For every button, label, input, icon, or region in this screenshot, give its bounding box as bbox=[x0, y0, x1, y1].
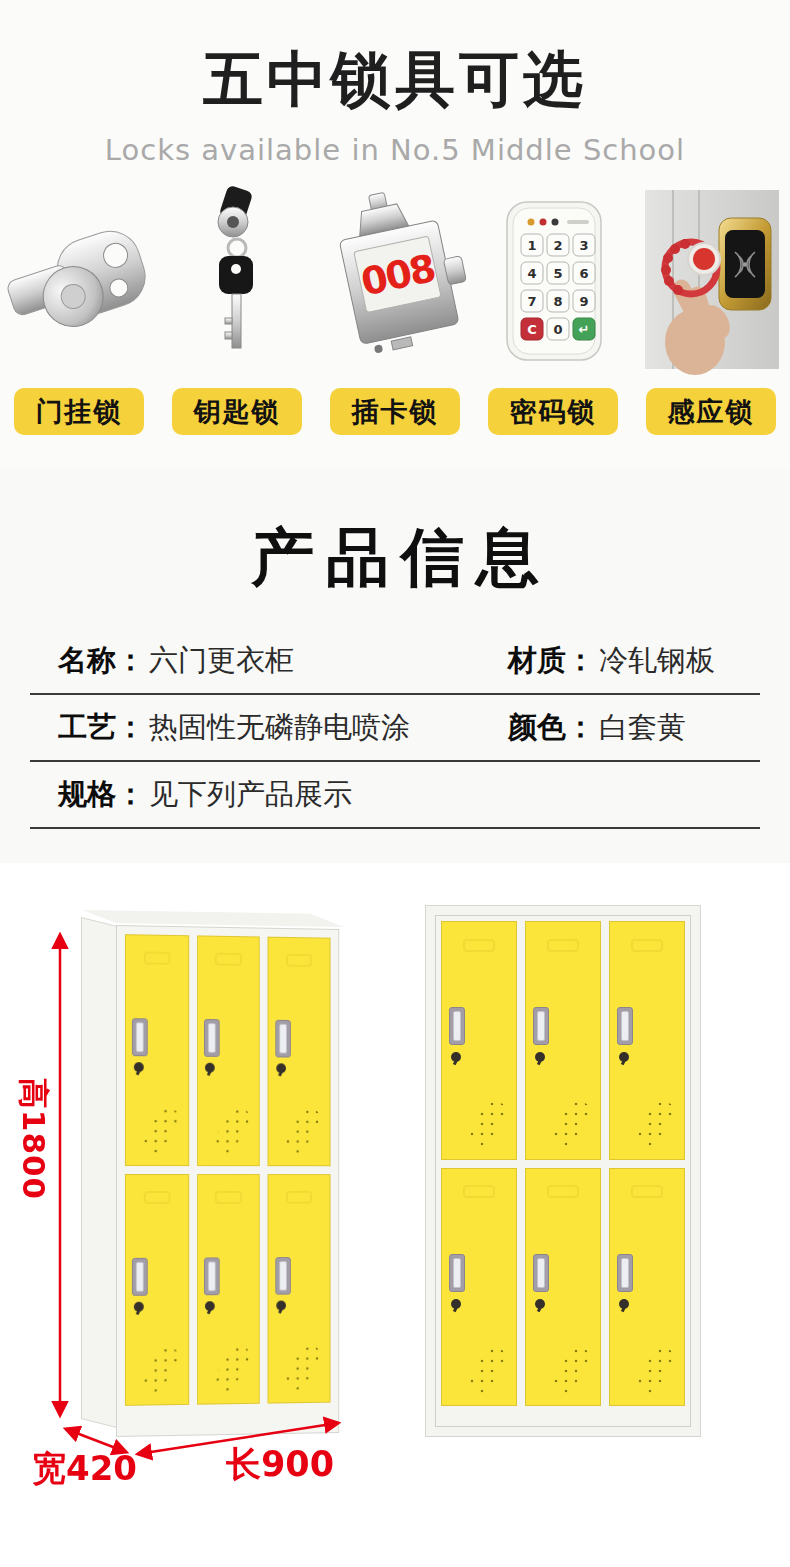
door-keyhole-icon bbox=[619, 1299, 629, 1309]
door-top-vent bbox=[215, 953, 242, 966]
page-subtitle: Locks available in No.5 Middle School bbox=[0, 133, 790, 167]
chip-password-lock[interactable]: 密码锁 bbox=[488, 388, 618, 435]
door-keyhole-icon bbox=[276, 1063, 286, 1073]
door-handle-icon bbox=[132, 1018, 148, 1056]
spec-label: 材质： bbox=[508, 641, 595, 681]
door-handle-icon bbox=[533, 1254, 549, 1292]
locker-doors-grid bbox=[125, 934, 331, 1406]
door-vent-holes bbox=[633, 1344, 677, 1396]
spec-row: 规格： 见下列产品展示 bbox=[30, 762, 760, 829]
door-top-vent bbox=[547, 939, 580, 952]
door-keyhole-icon bbox=[205, 1062, 215, 1072]
door-handle-icon bbox=[132, 1258, 148, 1296]
door-keyhole-icon bbox=[451, 1299, 461, 1309]
door-top-vent bbox=[286, 954, 313, 967]
spec-label: 工艺： bbox=[58, 708, 145, 748]
keypad-key-label: 5 bbox=[553, 266, 562, 281]
locker-front-inner-frame bbox=[435, 915, 691, 1427]
lock-label-chips: 门挂锁 钥匙锁 插卡锁 密码锁 感应锁 bbox=[14, 388, 776, 435]
locker-door bbox=[125, 934, 189, 1166]
door-vent-holes bbox=[549, 1097, 593, 1149]
product-info-title: 产品信息 bbox=[0, 515, 790, 601]
door-vent-holes bbox=[211, 1104, 254, 1156]
lock-photo-hasp bbox=[0, 180, 158, 378]
chip-card-lock[interactable]: 插卡锁 bbox=[330, 388, 460, 435]
keypad-key-label: 8 bbox=[553, 294, 562, 309]
card-lock-icon: 008 bbox=[319, 182, 471, 377]
door-handle-icon bbox=[449, 1007, 465, 1045]
door-top-vent bbox=[143, 1191, 170, 1204]
door-top-vent bbox=[463, 1185, 496, 1198]
keypad-key-label: 0 bbox=[553, 322, 562, 337]
door-keyhole-icon bbox=[535, 1299, 545, 1309]
keypad-key-label: 4 bbox=[527, 266, 536, 281]
keypad-key-label: 3 bbox=[579, 238, 588, 253]
keypad-key-label: ↵ bbox=[579, 322, 590, 337]
spec-value: 六门更衣柜 bbox=[149, 641, 294, 681]
lock-photo-key bbox=[158, 180, 316, 378]
door-top-vent bbox=[631, 1185, 664, 1198]
lock-photo-card: 008 bbox=[316, 180, 474, 378]
spec-row: 名称： 六门更衣柜 材质： 冷轧钢板 bbox=[30, 628, 760, 695]
door-handle-icon bbox=[204, 1257, 220, 1295]
product-page: 五中锁具可选 Locks available in No.5 Middle Sc… bbox=[0, 0, 790, 1567]
door-keyhole-icon bbox=[619, 1052, 629, 1062]
keypad-key-label: 2 bbox=[553, 238, 562, 253]
door-top-vent bbox=[215, 1191, 242, 1204]
locker-3d-side-panel bbox=[81, 917, 117, 1428]
lock-photo-induction bbox=[632, 180, 790, 378]
door-top-vent bbox=[547, 1185, 580, 1198]
locker-door bbox=[441, 921, 517, 1160]
keypad-key-label: 6 bbox=[579, 266, 588, 281]
locker-front-view bbox=[425, 905, 701, 1437]
door-keyhole-icon bbox=[451, 1052, 461, 1062]
spec-row: 工艺： 热固性无磷静电喷涂 颜色： 白套黄 bbox=[30, 695, 760, 762]
door-keyhole-icon bbox=[535, 1052, 545, 1062]
spec-label: 颜色： bbox=[508, 708, 595, 748]
door-handle-icon bbox=[449, 1254, 465, 1292]
door-top-vent bbox=[286, 1191, 313, 1204]
locker-door bbox=[197, 1174, 260, 1405]
door-keyhole-icon bbox=[133, 1301, 143, 1311]
key-lock-icon bbox=[161, 182, 313, 377]
keypad-key-label: 9 bbox=[579, 294, 588, 309]
locker-door bbox=[268, 937, 331, 1167]
locker-door bbox=[525, 921, 601, 1160]
keypad-key-label: C bbox=[527, 322, 537, 337]
locker-door bbox=[525, 1168, 601, 1407]
locker-showcase: 高1800 宽420 长900 bbox=[0, 880, 790, 1530]
keypad-key-label: 1 bbox=[527, 238, 536, 253]
door-vent-holes bbox=[465, 1097, 509, 1149]
lock-photo-keypad: 123456789C0↵ bbox=[474, 180, 632, 378]
dimension-width-label: 宽420 bbox=[32, 1446, 137, 1492]
spec-label: 规格： bbox=[58, 775, 145, 815]
locker-door bbox=[125, 1174, 189, 1406]
spec-value: 冷轧钢板 bbox=[599, 641, 715, 681]
spec-table: 名称： 六门更衣柜 材质： 冷轧钢板 工艺： 热固性无磷静电喷涂 颜色： 白套黄… bbox=[30, 628, 760, 829]
door-vent-holes bbox=[211, 1342, 254, 1394]
spec-value: 见下列产品展示 bbox=[149, 775, 352, 815]
door-top-vent bbox=[463, 939, 496, 952]
locker-doors-grid bbox=[441, 921, 685, 1406]
door-vent-holes bbox=[139, 1343, 182, 1395]
door-handle-icon bbox=[617, 1254, 633, 1292]
spec-value: 热固性无磷静电喷涂 bbox=[149, 708, 410, 748]
door-handle-icon bbox=[533, 1007, 549, 1045]
keypad-indicator-dark bbox=[552, 218, 559, 225]
door-vent-holes bbox=[633, 1097, 677, 1149]
chip-hasp-lock[interactable]: 门挂锁 bbox=[14, 388, 144, 435]
door-keyhole-icon bbox=[133, 1062, 143, 1072]
door-keyhole-icon bbox=[276, 1300, 286, 1310]
locker-door bbox=[441, 1168, 517, 1407]
chip-key-lock[interactable]: 钥匙锁 bbox=[172, 388, 302, 435]
door-vent-holes bbox=[465, 1344, 509, 1396]
keypad-indicator-red bbox=[540, 218, 547, 225]
door-handle-icon bbox=[617, 1007, 633, 1045]
lock-photos-row: 008 123456789C0↵ bbox=[0, 180, 790, 378]
door-handle-icon bbox=[204, 1019, 220, 1057]
locker-door bbox=[268, 1174, 331, 1404]
door-vent-holes bbox=[549, 1344, 593, 1396]
door-keyhole-icon bbox=[205, 1301, 215, 1311]
door-vent-holes bbox=[281, 1341, 324, 1393]
door-vent-holes bbox=[139, 1104, 182, 1156]
chip-induction-lock[interactable]: 感应锁 bbox=[646, 388, 776, 435]
hasp-lock-icon bbox=[3, 182, 155, 377]
locker-3d-view bbox=[116, 925, 339, 1437]
keypad-key-label: 7 bbox=[527, 294, 536, 309]
door-handle-icon bbox=[275, 1020, 291, 1058]
dimension-height-label: 高1800 bbox=[18, 1075, 54, 1203]
dimension-length-label: 长900 bbox=[226, 1441, 334, 1488]
induction-lock-icon bbox=[635, 182, 787, 377]
locker-door bbox=[609, 921, 685, 1160]
locker-door bbox=[609, 1168, 685, 1407]
door-top-vent bbox=[631, 939, 664, 952]
locks-banner: 五中锁具可选 Locks available in No.5 Middle Sc… bbox=[0, 0, 790, 468]
door-top-vent bbox=[143, 952, 170, 965]
keypad-indicator-amber bbox=[528, 218, 535, 225]
page-title: 五中锁具可选 bbox=[0, 40, 790, 121]
spec-label: 名称： bbox=[58, 641, 145, 681]
keypad-lock-icon: 123456789C0↵ bbox=[477, 182, 629, 377]
door-handle-icon bbox=[275, 1257, 291, 1295]
locker-door bbox=[197, 935, 260, 1166]
door-vent-holes bbox=[281, 1105, 324, 1156]
spec-value: 白套黄 bbox=[599, 708, 686, 748]
